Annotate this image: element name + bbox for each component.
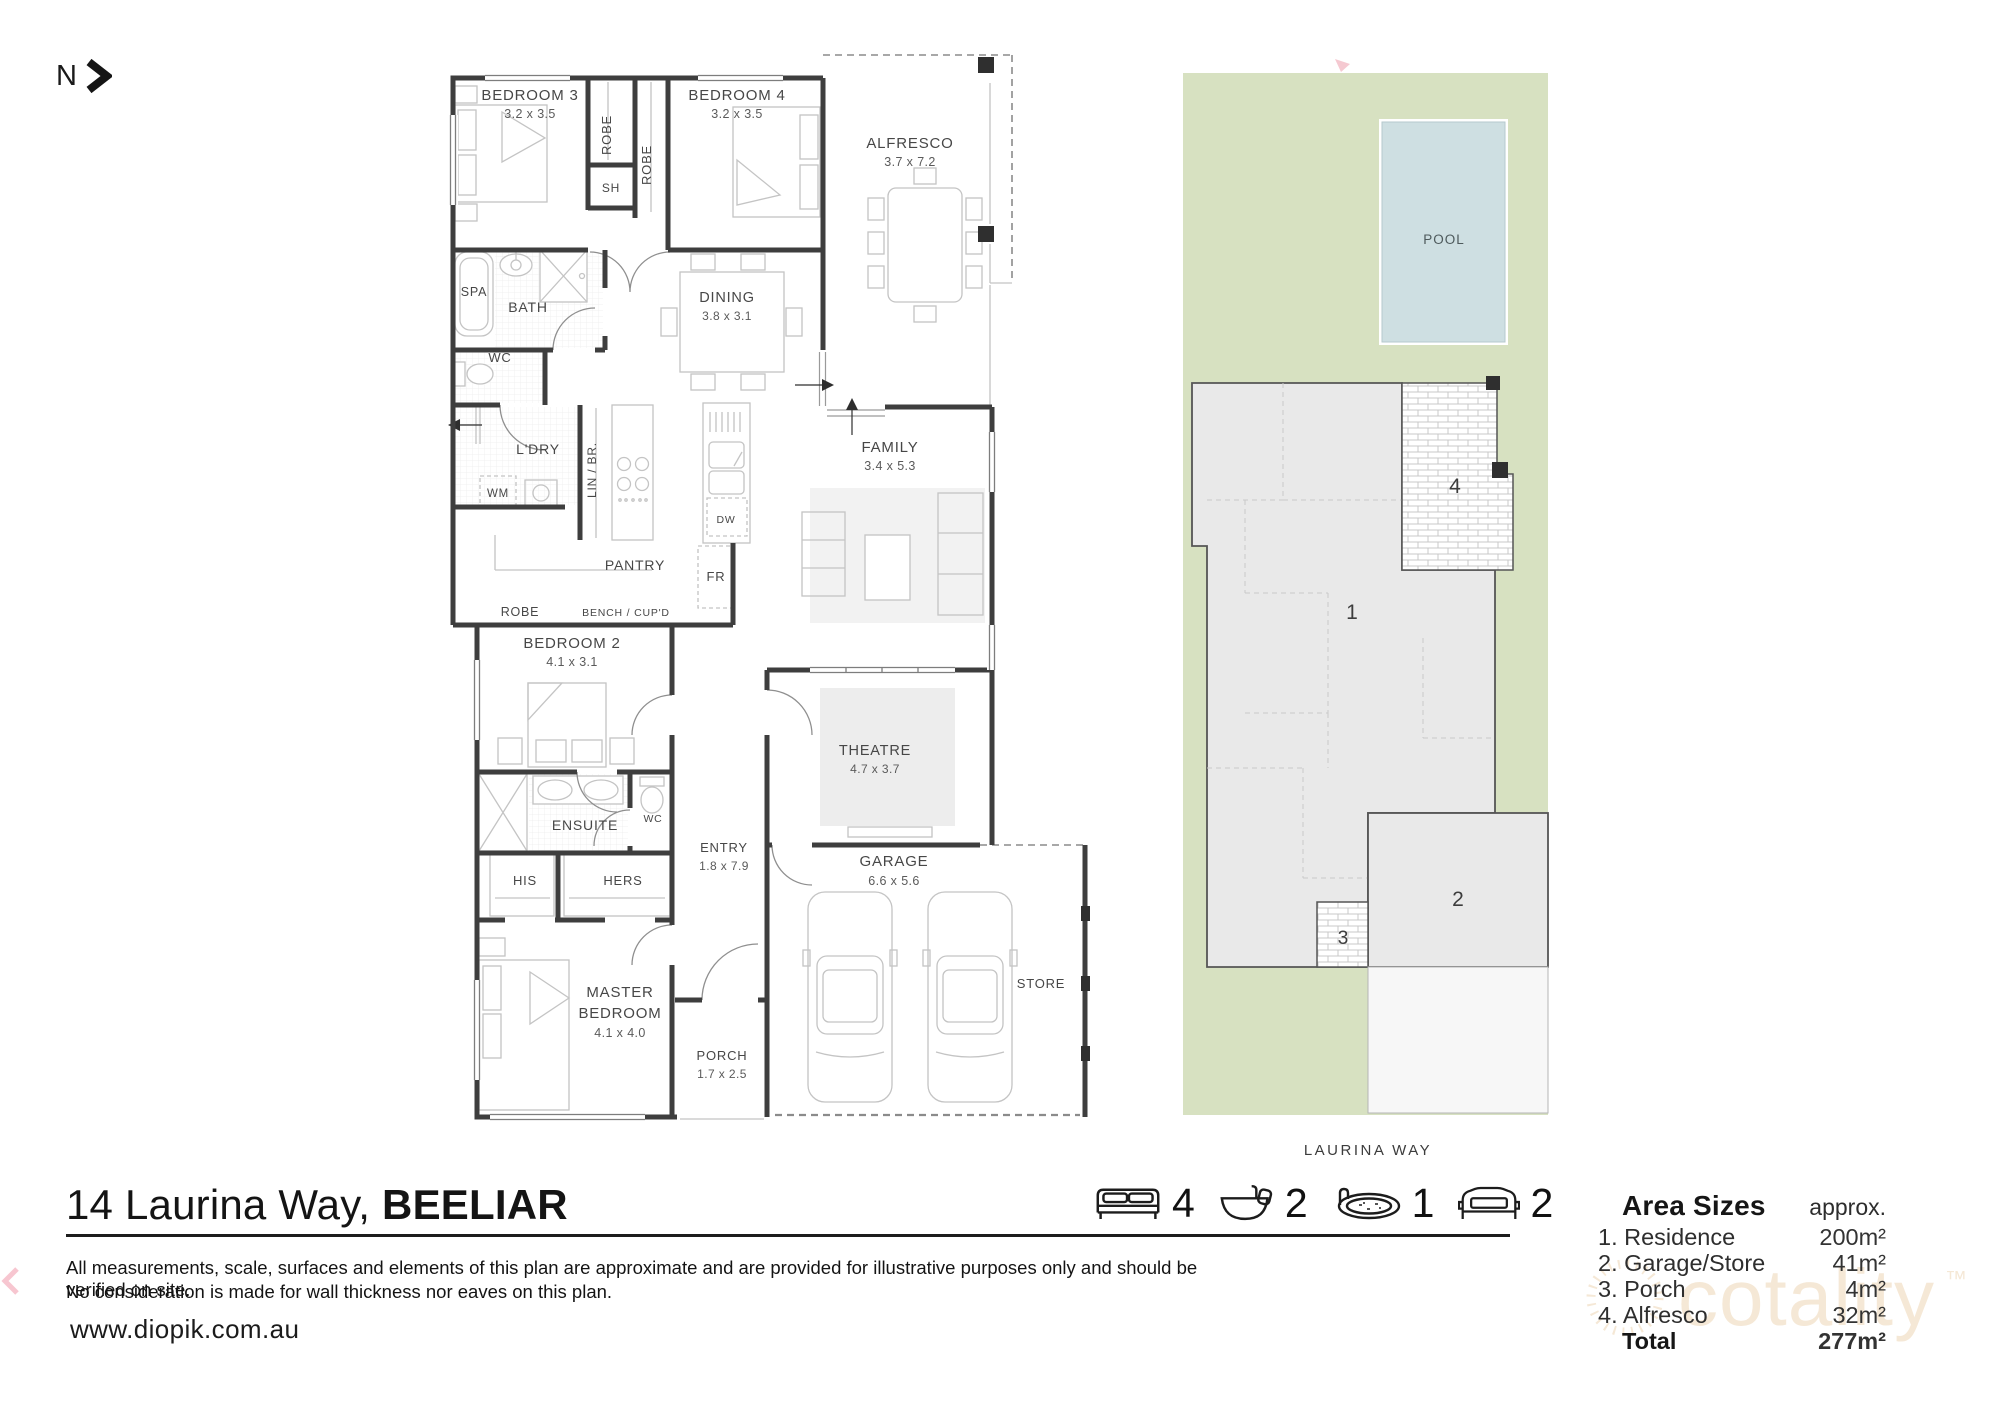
room-label-garage: GARAGE — [860, 853, 929, 870]
pool-icon — [1332, 1185, 1402, 1221]
site-post — [1492, 462, 1508, 478]
bath-icon — [1219, 1182, 1275, 1224]
area-row-value: 32m² — [1832, 1302, 1886, 1328]
room-label-robe-a: ROBE — [599, 115, 614, 155]
room-label-wm: WM — [487, 488, 509, 500]
area-row-label: 4. Alfresco — [1598, 1302, 1708, 1328]
room-label-entry: ENTRY — [700, 840, 748, 855]
room-label-master-2: BEDROOM — [578, 1005, 661, 1022]
room-label-robe-b: ROBE — [639, 145, 654, 185]
room-label-dw: DW — [716, 514, 735, 526]
posts — [978, 57, 1090, 1061]
baths-summary: 2 — [1219, 1180, 1308, 1227]
pools-summary: 1 — [1332, 1180, 1435, 1227]
summary-icons: 4 2 1 — [1094, 1178, 1553, 1228]
room-label-master-1: MASTER — [586, 984, 653, 1001]
room-label-store: STORE — [1017, 976, 1066, 991]
room-dims-garage: 6.6 x 5.6 — [868, 874, 920, 888]
beds-count: 4 — [1172, 1180, 1195, 1227]
room-label-bath: BATH — [508, 299, 548, 315]
room-label-robe-c: ROBE — [501, 605, 540, 619]
floor-plan: BEDROOM 3 3.2 x 3.5 BEDROOM 4 3.2 x 3.5 … — [340, 40, 1130, 1130]
room-dims-master: 4.1 x 4.0 — [594, 1026, 646, 1040]
room-label-ldry: L'DRY — [516, 441, 560, 457]
room-label-sh: SH — [602, 181, 620, 195]
room-label-porch: PORCH — [697, 1048, 748, 1063]
north-label: N — [56, 60, 77, 93]
room-label-wc2: WC — [643, 813, 662, 825]
area-total-label: Total — [1598, 1328, 1676, 1354]
room-label-his: HIS — [513, 873, 537, 888]
room-dims-bedroom2: 4.1 x 3.1 — [546, 655, 598, 669]
area-row-value: 4m² — [1846, 1276, 1886, 1302]
car-icon — [1458, 1182, 1520, 1224]
room-label-dining: DINING — [699, 290, 755, 306]
baths-count: 2 — [1285, 1180, 1308, 1227]
site-driveway — [1368, 967, 1548, 1113]
room-dims-theatre: 4.7 x 3.7 — [850, 762, 900, 776]
site-label-alfresco: 4 — [1449, 475, 1461, 498]
area-row-value: 41m² — [1832, 1250, 1886, 1276]
floorplan-page: N — [0, 0, 2000, 1414]
room-label-bench: BENCH / CUP'D — [582, 607, 670, 619]
site-label-garage: 2 — [1452, 888, 1464, 911]
area-row-label: 1. Residence — [1598, 1224, 1735, 1250]
site-label-residence: 1 — [1346, 601, 1358, 624]
room-dims-porch: 1.7 x 2.5 — [697, 1067, 747, 1081]
room-label-pantry: PANTRY — [605, 557, 665, 573]
pool-label: POOL — [1423, 232, 1465, 247]
room-label-spa: SPA — [461, 285, 488, 299]
area-sizes-approx: approx. — [1809, 1194, 1886, 1221]
site-label-porch: 3 — [1338, 928, 1349, 949]
room-label-alfresco: ALFRESCO — [866, 135, 953, 152]
room-dims-bedroom3: 3.2 x 3.5 — [504, 107, 556, 121]
room-dims-bedroom4: 3.2 x 3.5 — [711, 107, 763, 121]
room-label-hers: HERS — [603, 873, 642, 888]
area-total-value: 277m² — [1818, 1328, 1886, 1354]
room-label-bedroom4: BEDROOM 4 — [688, 87, 785, 104]
area-row-porch: 3. Porch 4m² — [1598, 1276, 1886, 1302]
street-label: LAURINA WAY — [1256, 1142, 1480, 1159]
room-dims-dining: 3.8 x 3.1 — [702, 309, 752, 323]
room-label-wc: WC — [488, 350, 511, 365]
area-row-value: 200m² — [1819, 1224, 1886, 1250]
chevron-artifact — [0, 1266, 20, 1296]
room-label-ensuite: ENSUITE — [552, 817, 618, 833]
room-label-bedroom3: BEDROOM 3 — [481, 87, 578, 104]
north-indicator: N — [56, 58, 112, 94]
bed-icon — [1094, 1183, 1162, 1223]
cars-count: 2 — [1530, 1180, 1553, 1227]
room-label-theatre: THEATRE — [839, 743, 911, 759]
website-url: www.diopik.com.au — [70, 1314, 299, 1345]
page-title: 14 Laurina Way, BEELIAR — [66, 1181, 568, 1229]
divider-rule — [66, 1234, 1510, 1237]
disclaimer-line2: No consideration is made for wall thickn… — [66, 1281, 1246, 1303]
area-row-total: Total 277m² — [1598, 1328, 1886, 1354]
area-row-label: 3. Porch — [1598, 1276, 1686, 1302]
area-row-alfresco: 4. Alfresco 32m² — [1598, 1302, 1886, 1328]
area-sizes-table: Area Sizes approx. 1. Residence 200m² 2.… — [1598, 1190, 1886, 1354]
site-post — [1486, 376, 1500, 390]
cars-summary: 2 — [1458, 1180, 1553, 1227]
area-row-residence: 1. Residence 200m² — [1598, 1224, 1886, 1250]
area-sizes-header: Area Sizes approx. — [1598, 1190, 1886, 1222]
title-address: 14 Laurina Way, — [66, 1181, 370, 1228]
site-plan: POOL 1 4 2 3 — [1183, 68, 1555, 1118]
area-sizes-title: Area Sizes — [1598, 1190, 1766, 1222]
room-dims-alfresco: 3.7 x 7.2 — [884, 155, 936, 169]
room-label-bedroom2: BEDROOM 2 — [523, 635, 620, 652]
north-arrow-icon — [84, 58, 112, 94]
room-dims-family: 3.4 x 5.3 — [864, 459, 916, 473]
beds-summary: 4 — [1094, 1180, 1195, 1227]
title-suburb: BEELIAR — [382, 1181, 568, 1228]
room-label-linbr: LIN / BR. — [585, 442, 599, 498]
room-dims-entry: 1.8 x 7.9 — [699, 859, 749, 873]
area-row-label: 2. Garage/Store — [1598, 1250, 1765, 1276]
room-label-family: FAMILY — [861, 439, 918, 456]
watermark-tm: ™ — [1945, 1266, 1968, 1292]
pools-count: 1 — [1412, 1180, 1435, 1227]
area-row-garage: 2. Garage/Store 41m² — [1598, 1250, 1886, 1276]
room-label-fr: FR — [707, 569, 726, 584]
